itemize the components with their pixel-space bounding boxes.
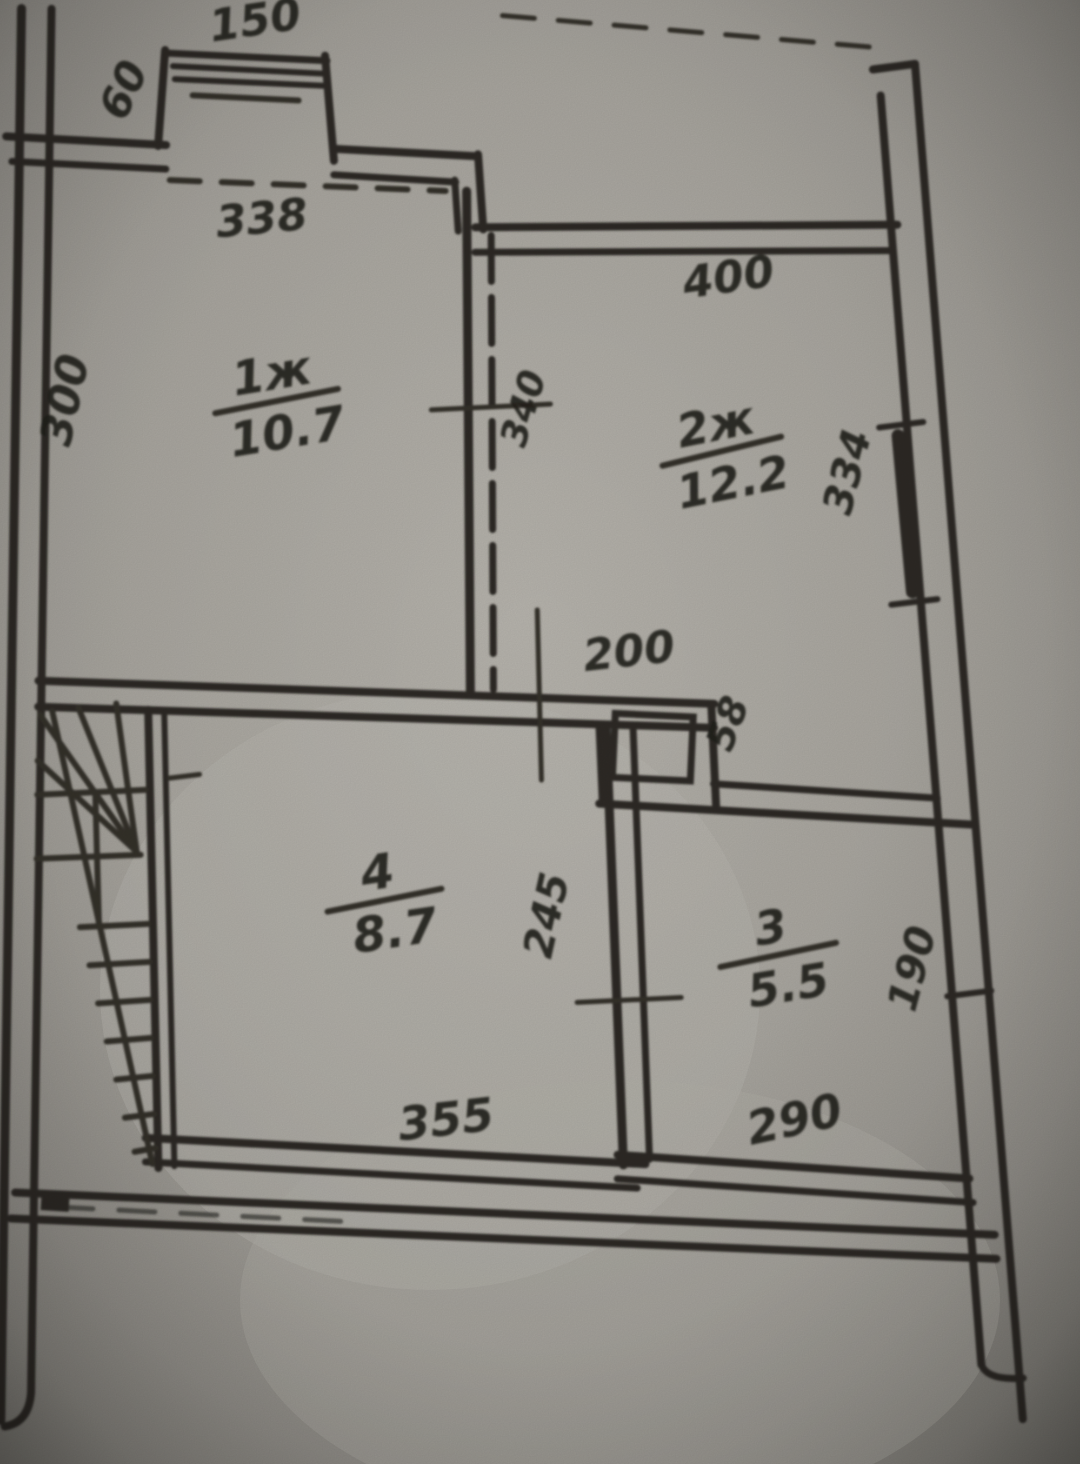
vignette-overlay	[0, 0, 1080, 1464]
floor-plan-photo: 1ж 10.7 2ж 12.2 3 5.5 4 8.7	[0, 0, 1080, 1464]
floor-plan-canvas: 1ж 10.7 2ж 12.2 3 5.5 4 8.7	[0, 0, 1080, 1464]
